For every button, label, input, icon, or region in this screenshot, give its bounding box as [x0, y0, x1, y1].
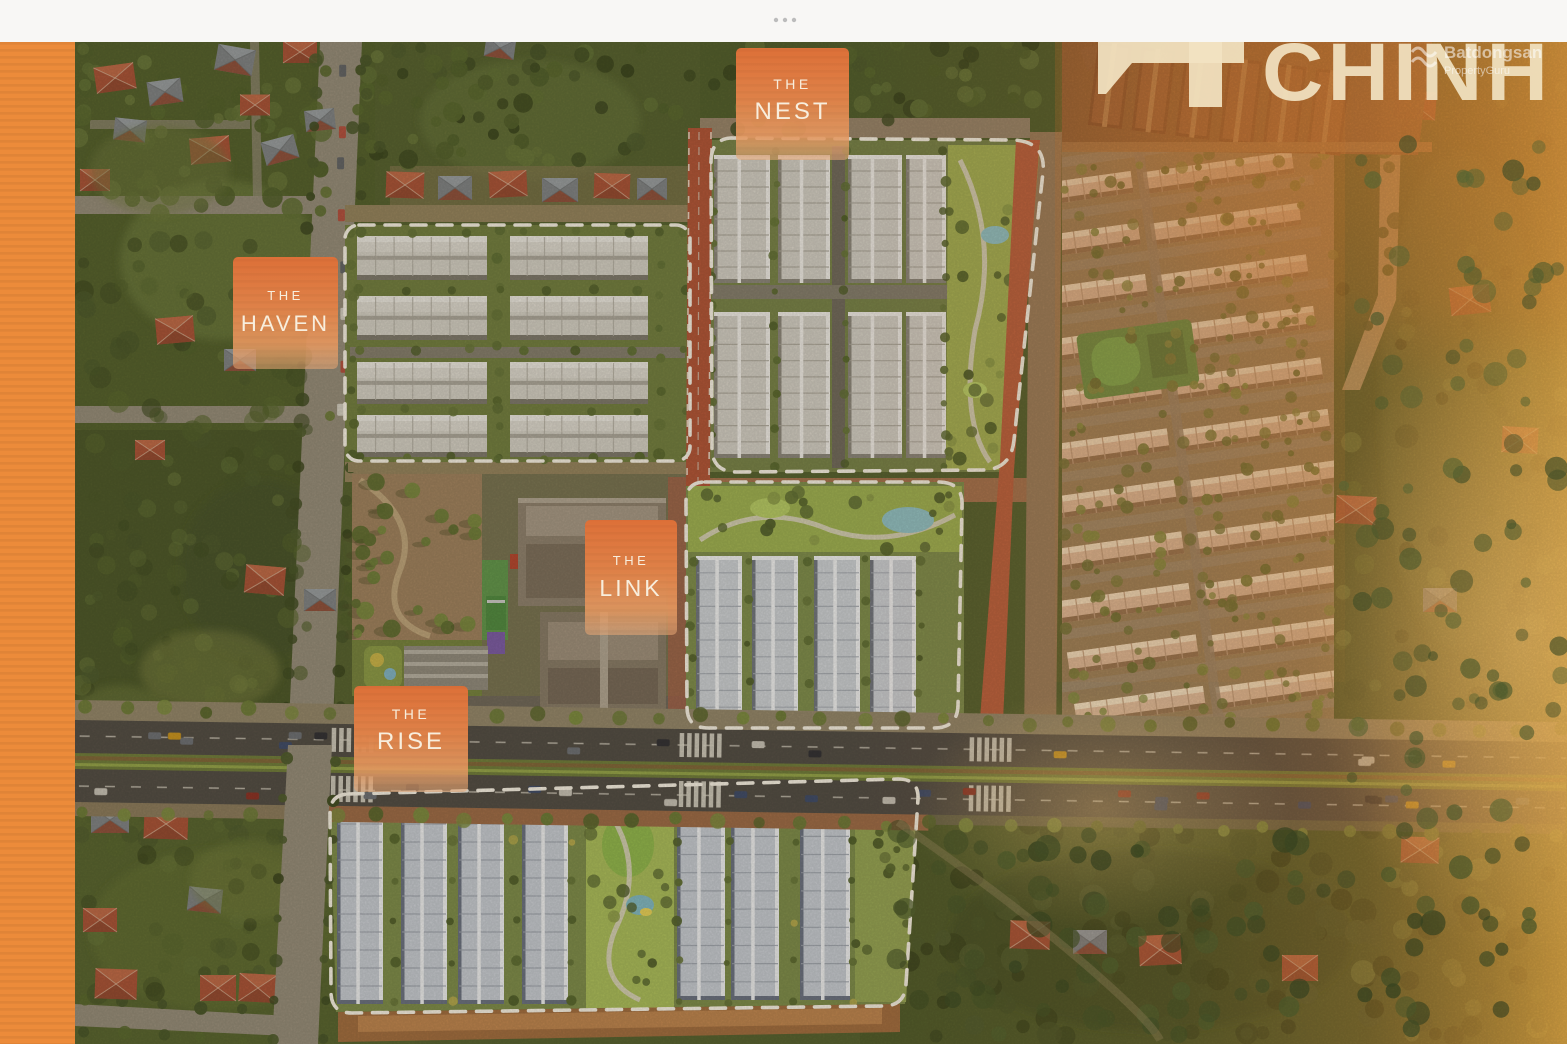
svg-text:RISE: RISE — [377, 728, 445, 755]
svg-text:THE: THE — [267, 288, 304, 303]
svg-text:THE: THE — [773, 76, 812, 92]
svg-text:PropertyGuru: PropertyGuru — [1444, 65, 1510, 77]
svg-text:THE: THE — [392, 706, 431, 722]
svg-text:Batdongsan: Batdongsan — [1444, 43, 1542, 62]
svg-text:THE: THE — [613, 553, 650, 568]
svg-text:NEST: NEST — [754, 98, 830, 125]
svg-text:LINK: LINK — [599, 575, 662, 601]
svg-text:HAVEN: HAVEN — [241, 311, 330, 336]
